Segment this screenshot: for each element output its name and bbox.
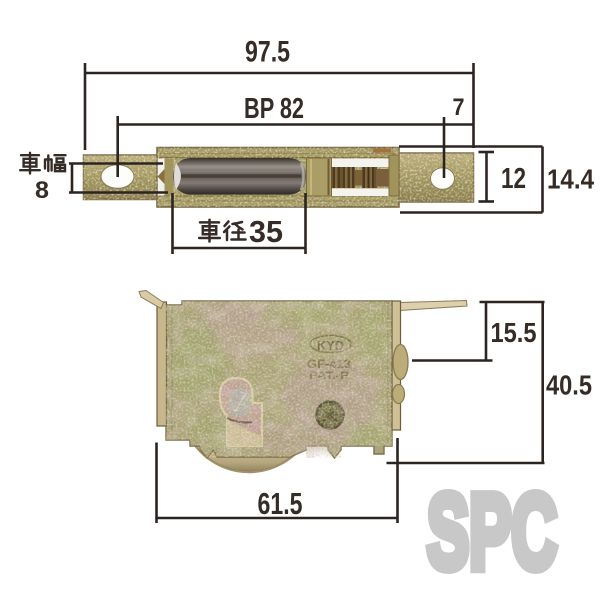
svg-text:97.5: 97.5 — [245, 36, 290, 69]
svg-text:35: 35 — [249, 214, 283, 249]
svg-text:15.5: 15.5 — [491, 317, 537, 348]
svg-text:40.5: 40.5 — [546, 370, 592, 401]
svg-text:SPC: SPC — [427, 473, 557, 591]
svg-text:8: 8 — [35, 177, 49, 204]
svg-text:14.4: 14.4 — [547, 164, 594, 195]
svg-text:12: 12 — [501, 163, 526, 195]
svg-text:7: 7 — [453, 94, 465, 121]
svg-text:BP 82: BP 82 — [244, 93, 304, 125]
svg-text:61.5: 61.5 — [258, 486, 303, 521]
